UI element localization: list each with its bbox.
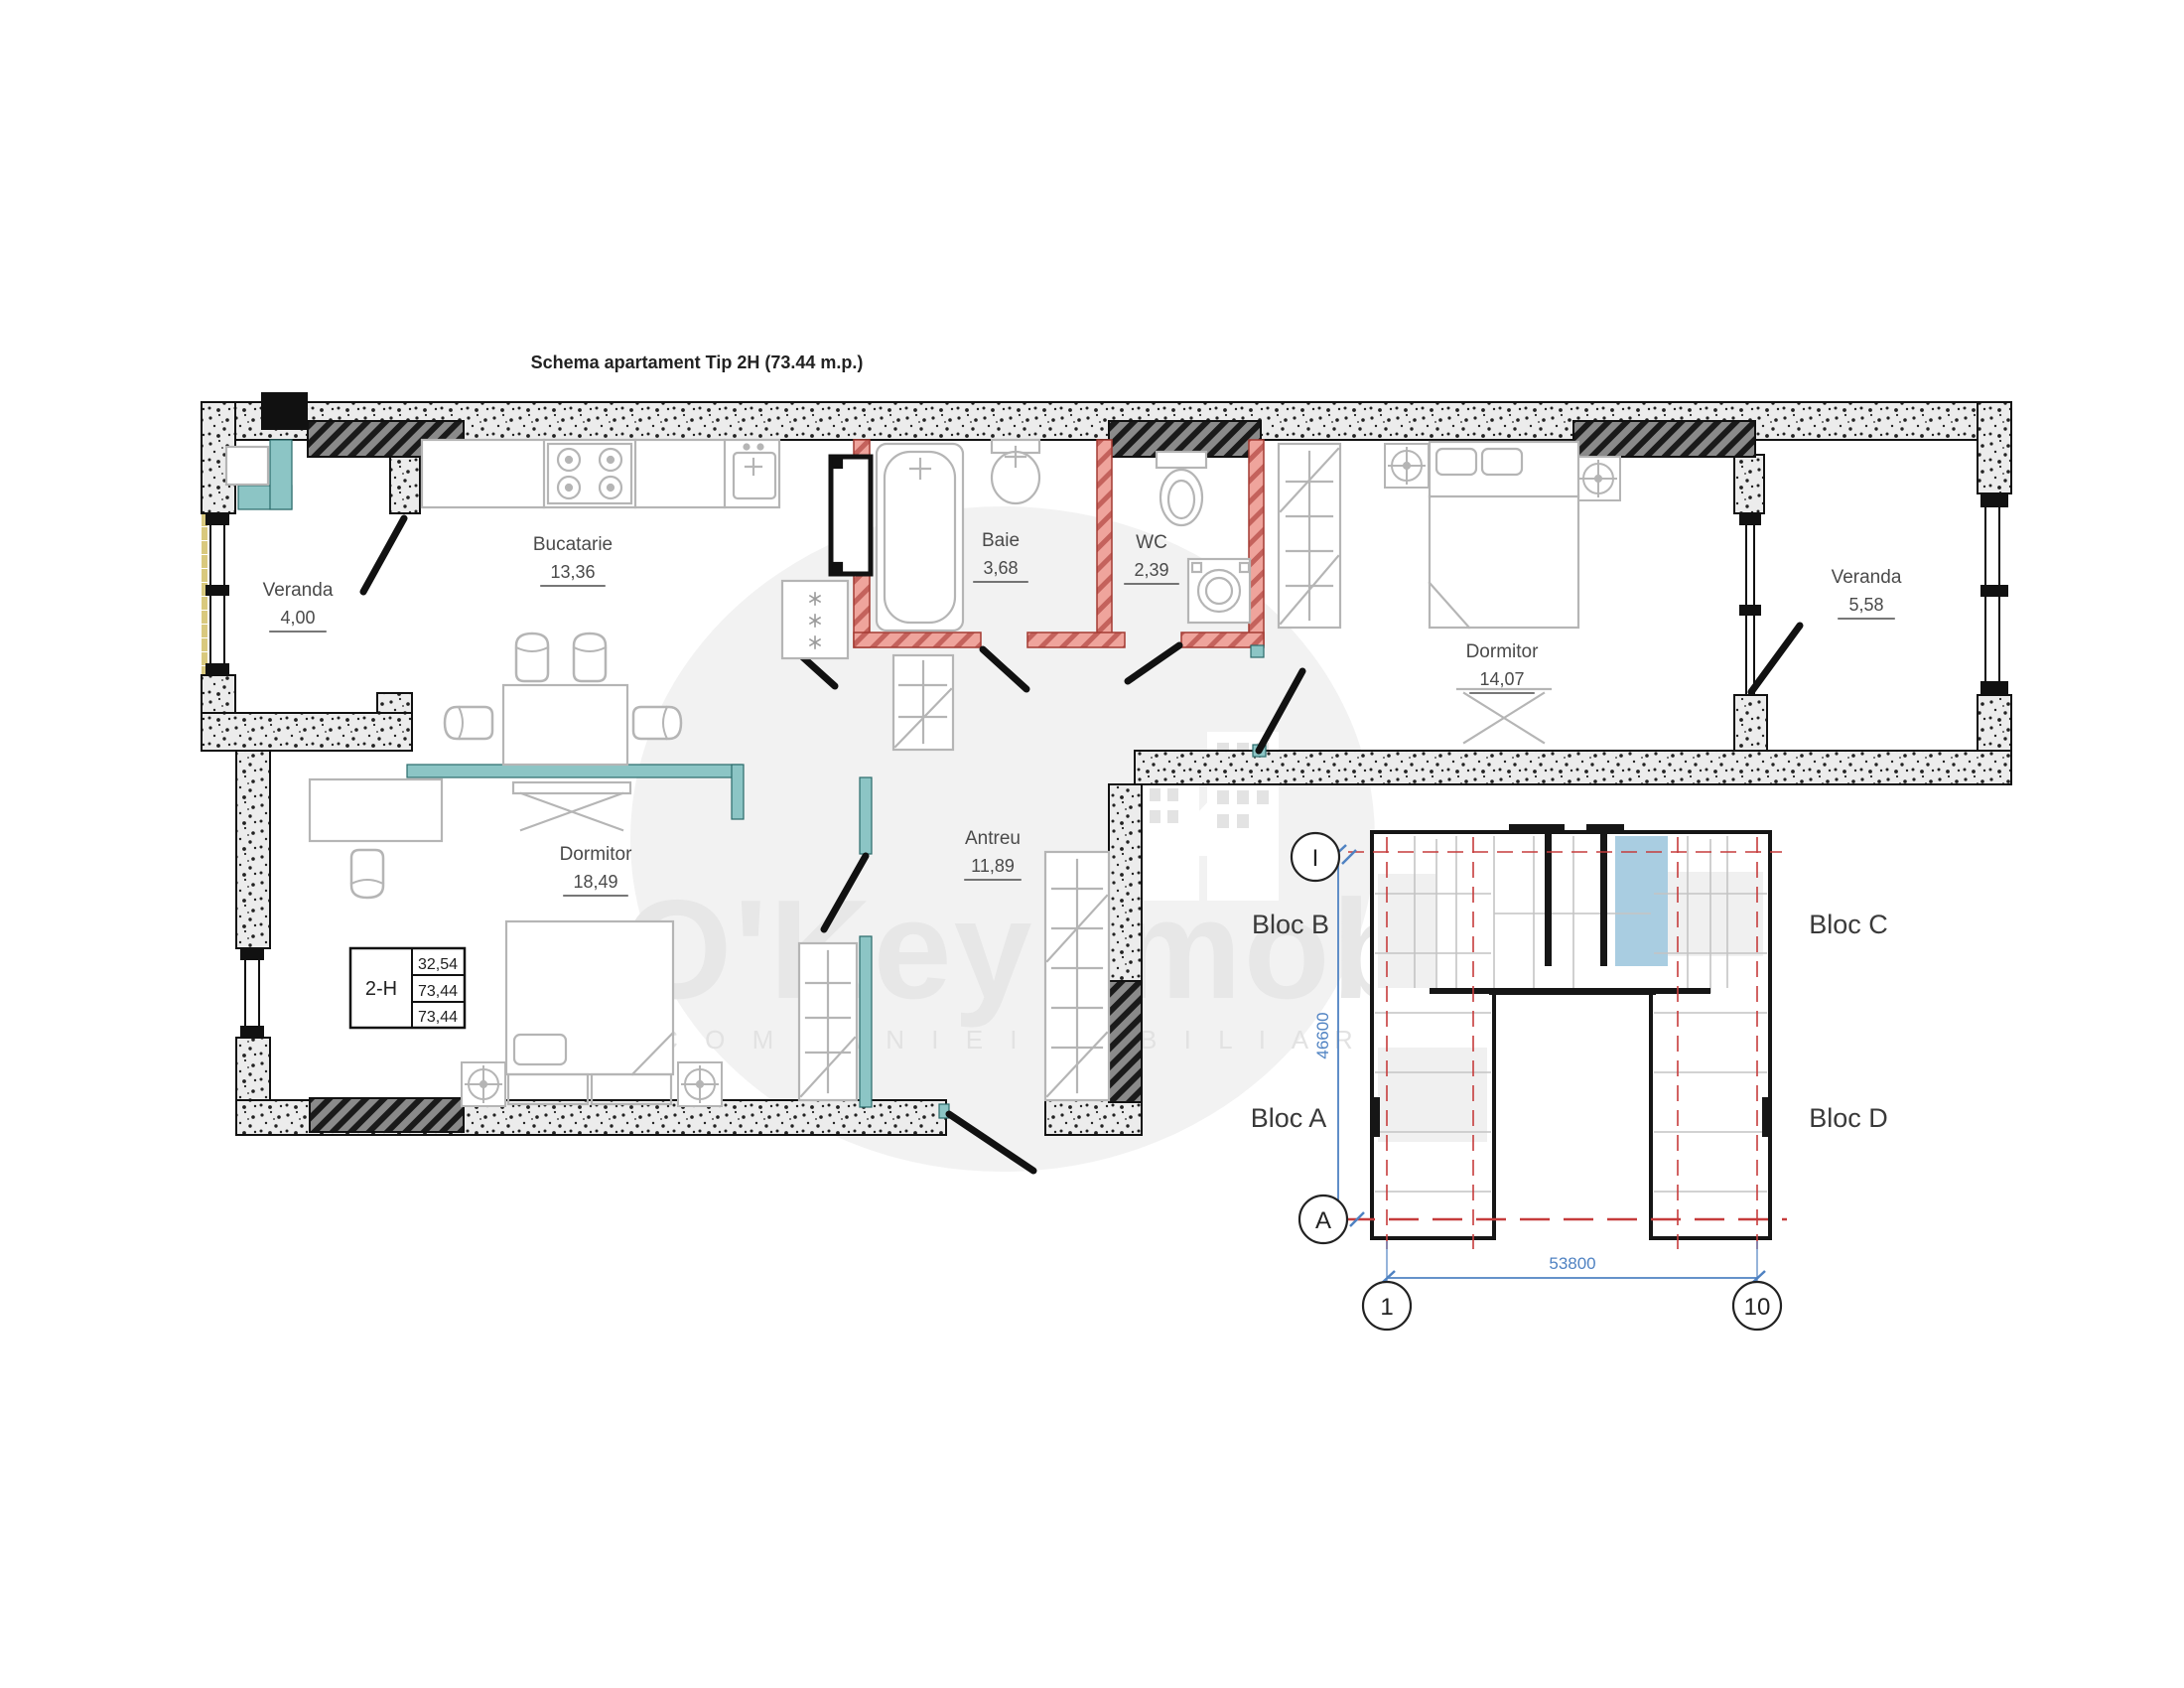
wardrobe-icon [1279, 444, 1340, 628]
wardrobe-icon [1045, 852, 1109, 1100]
axis-col-start: 1 [1380, 1294, 1393, 1321]
room-area: 4,00 [280, 608, 315, 628]
door-veranda1 [363, 518, 404, 592]
room-dormitor-1: Dormitor 14,07 [1466, 641, 1540, 693]
vent-icon [1576, 457, 1620, 500]
veranda-cabinet [226, 447, 268, 485]
dimension-height: 46600 [1313, 1012, 1332, 1058]
dimension-width: 53800 [1549, 1254, 1595, 1273]
bloc-label-a: Bloc A [1251, 1103, 1327, 1133]
unit-area-3: 73,44 [418, 1009, 458, 1026]
room-name: Veranda [263, 580, 334, 601]
desk-chair [351, 850, 383, 898]
room-bucatarie: Bucatarie 13,36 [533, 534, 613, 586]
axis-top-left: I [1312, 845, 1319, 872]
rack-icon [1457, 689, 1551, 743]
blueprint-canvas: O'Key Imobil C O M P A N I E I M O B I L… [0, 0, 2184, 1688]
room-name: Veranda [1832, 567, 1902, 588]
desk [310, 779, 442, 841]
unit-area-1: 32,54 [418, 956, 458, 973]
top-wall-window-block [261, 392, 308, 430]
bloc-label-d: Bloc D [1809, 1103, 1888, 1133]
toilet-icon [1157, 452, 1206, 525]
room-area: 18,49 [573, 872, 617, 892]
unit-info-table: 2-H 32,54 73,44 73,44 [350, 948, 465, 1028]
room-name: Dormitor [560, 844, 633, 865]
blueprint-page: O'Key Imobil C O M P A N I E I M O B I L… [0, 0, 2184, 1688]
bed-double [1430, 442, 1578, 628]
wardrobe-icon [799, 943, 857, 1100]
wardrobe-icon [893, 655, 953, 750]
room-name: Baie [982, 530, 1020, 551]
room-area: 3,68 [983, 558, 1018, 578]
tv-stand-icon [513, 782, 630, 830]
room-area: 11,89 [971, 856, 1015, 876]
watermark-tagline: C O M P A N I E I M O B I L I A R A [659, 1025, 1406, 1055]
room-name: WC [1136, 532, 1167, 553]
nightstand-vent-icon [678, 1062, 722, 1106]
washing-machine-icon [1188, 559, 1250, 623]
room-veranda-2: Veranda 5,58 [1832, 567, 1902, 619]
room-area: 5,58 [1848, 595, 1883, 615]
axis-bottom-left: A [1315, 1207, 1331, 1234]
washbasin-icon [992, 440, 1039, 503]
room-name: Dormitor [1466, 641, 1540, 662]
room-veranda-1: Veranda 4,00 [263, 580, 334, 632]
room-name: Antreu [965, 828, 1021, 849]
axis-col-end: 10 [1744, 1294, 1771, 1321]
bloc-label-c: Bloc C [1809, 910, 1888, 939]
room-name: Bucatarie [533, 534, 613, 555]
nightstand-vent-icon [462, 1062, 505, 1106]
room-area: 13,36 [550, 562, 595, 582]
dining-table [445, 633, 681, 765]
fridge-icon [782, 581, 848, 658]
highlighted-unit [1615, 836, 1668, 966]
bloc-label-b: Bloc B [1252, 910, 1329, 939]
room-area: 2,39 [1134, 560, 1168, 580]
door-veranda2 [1751, 626, 1800, 692]
unit-area-2: 73,44 [418, 983, 458, 1000]
vent-shaft [831, 457, 871, 574]
unit-code: 2-H [365, 978, 397, 1000]
vent-icon [1385, 444, 1429, 488]
page-title: Schema apartament Tip 2H (73.44 m.p.) [531, 352, 864, 372]
room-area: 14,07 [1479, 669, 1524, 689]
bed-double [506, 921, 673, 1104]
bathtub-icon [877, 444, 963, 631]
